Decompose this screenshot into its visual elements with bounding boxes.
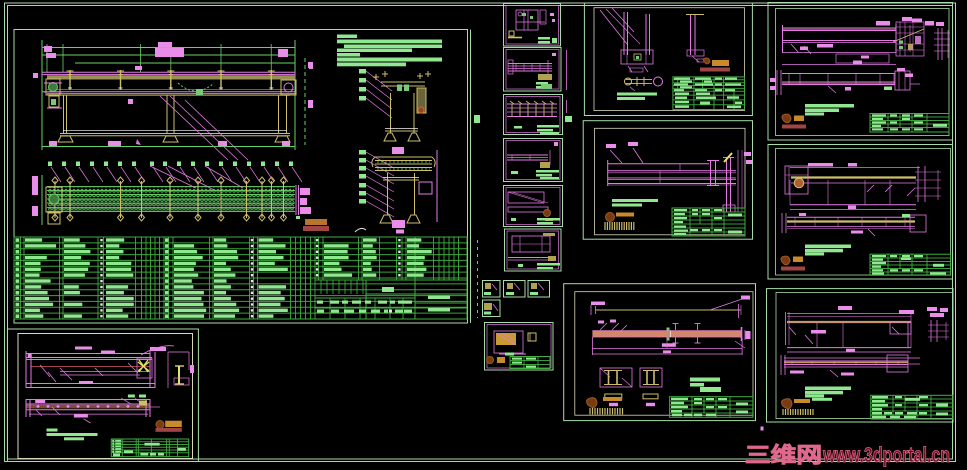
svg-text:三维网: 三维网 [745,443,822,467]
svg-text:www.3dportal.cn: www.3dportal.cn [822,444,950,467]
